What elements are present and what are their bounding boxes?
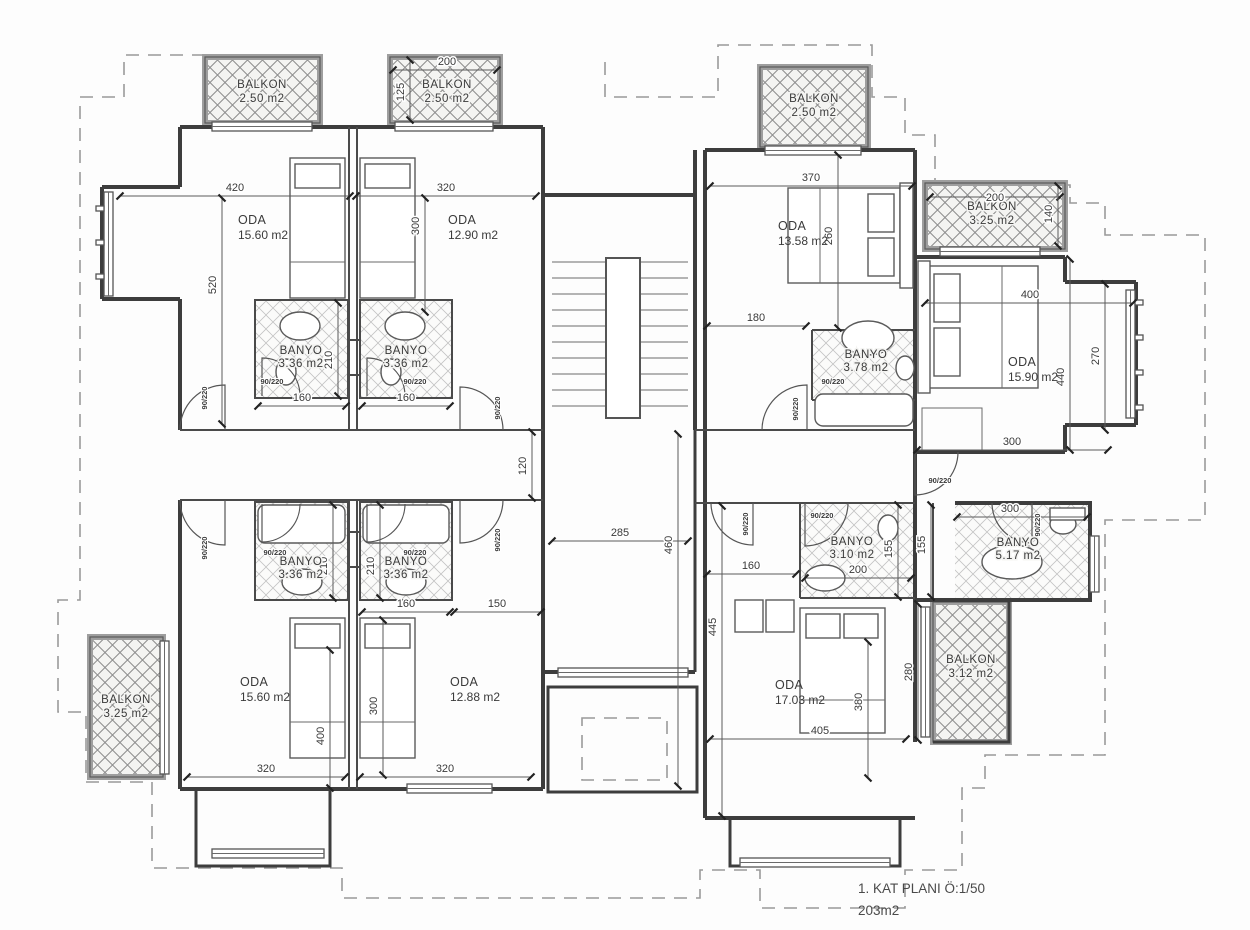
dim-300-br: 300 [1001,503,1019,515]
bed-oda-top-left [290,158,345,298]
window-hall-bottom [558,668,688,677]
cabinet [1050,508,1085,520]
dim-300-right: 300 [1003,436,1021,448]
dim-210-top: 210 [323,351,335,369]
dim-405: 405 [811,725,829,737]
dim-140: 140 [1043,205,1055,223]
dim-320-d: 320 [436,763,454,775]
title-block: 1. KAT PLANI Ö:1/50 203m2 [858,881,985,918]
room-area: 12.90 m2 [448,228,498,242]
window-porch-bottom-left [212,849,324,858]
room-name: ODA [238,213,267,227]
dim-120: 120 [517,457,529,475]
window-bay-left [96,192,113,296]
balcony-label: BALKON [422,79,472,91]
dim-445: 445 [707,618,719,636]
roof-outline [58,45,1205,908]
room-area: 13.58 m2 [778,234,828,248]
door-size-label: 90/220 [200,537,209,560]
dim-460: 460 [663,536,675,554]
window-porch-bottom-right [740,858,890,867]
room-name: ODA [448,213,477,227]
room-name: BANYO [997,537,1040,549]
balcony-top-1: BALKON 2.50 m2 [205,57,320,123]
dim-380: 380 [853,693,865,711]
roof-void-outline [582,718,667,780]
window-bay-right [1126,290,1143,418]
balcony-area: 2.50 m2 [239,93,284,105]
dim-300-tl: 300 [410,217,422,235]
room-name: ODA [450,675,479,689]
door-size-label: 90/220 [822,377,845,386]
balcony-label: BALKON [237,79,287,91]
dim-300-bl: 300 [368,697,380,715]
door-size-label: 90/220 [929,476,952,485]
room-name: BANYO [831,536,874,548]
sink [280,312,320,340]
dim-160-c: 160 [397,598,415,610]
balcony-label: BALKON [946,654,996,666]
window-balcony-left-edge [160,641,169,774]
dim-125: 125 [395,83,407,101]
dim-320-c: 320 [257,763,275,775]
bathtub [363,505,449,543]
door-size-label: 90/220 [404,377,427,386]
balcony-bottom-right: BALKON 3.12 m2 [933,602,1009,742]
plan-title: 1. KAT PLANI Ö:1/50 [858,881,985,896]
dim-200-balcony2: 200 [438,56,456,68]
dim-520: 520 [207,276,219,294]
door-arc [915,452,958,495]
room-area: 3.10 m2 [829,549,874,561]
dim-150: 150 [488,598,506,610]
bed-oda-bottom-mid [360,618,415,758]
dim-155-a: 155 [883,540,895,558]
room-area: 15.90 m2 [1008,370,1058,384]
bed-oda-top-mid [360,158,415,298]
dim-285: 285 [611,527,629,539]
balcony-label: BALKON [789,93,839,105]
room-area: 3.36 m2 [383,569,428,581]
door-size-label: 90/220 [1033,514,1042,537]
balcony-area: 2.50 m2 [424,93,469,105]
dim-420: 420 [226,182,244,194]
balcony-left-bottom: BALKON 3.25 m2 [90,637,163,777]
dim-155-b: 155 [916,536,928,554]
door-size-label: 90/220 [493,397,502,420]
dim-400-bl: 400 [315,727,327,745]
door-size-label: 90/220 [741,513,750,536]
toilet [896,356,914,380]
bathtub [258,505,345,543]
room-area: 3.36 m2 [383,358,428,370]
toilet [878,515,898,541]
dim-370: 370 [802,172,820,184]
room-area: 15.60 m2 [240,690,290,704]
door-size-label: 90/220 [261,377,284,386]
door-size-label: 90/220 [811,511,834,520]
room-area: 12.88 m2 [450,690,500,704]
window-balcony-door-1 [212,122,312,131]
balcony-area: 3.12 m2 [948,668,993,680]
dim-270: 270 [1090,347,1102,365]
balcony-label: BALKON [101,694,151,706]
room-name: ODA [1008,355,1037,369]
room-area: 15.60 m2 [238,228,288,242]
window-balcony-door-3 [765,146,861,155]
dim-400-right: 400 [1021,289,1039,301]
door-size-label: 90/220 [200,387,209,410]
room-name: ODA [240,675,269,689]
room-name: BANYO [280,556,323,568]
room-name: BANYO [385,345,428,357]
balcony-top-3: BALKON 2.50 m2 [760,67,868,147]
balcony-area: 3.25 m2 [103,708,148,720]
sink [385,312,425,340]
room-area: 17.03 m2 [775,693,825,707]
room-area: 3.36 m2 [278,569,323,581]
room-name: ODA [775,678,804,692]
bed-oda-bottom-right [735,600,885,733]
dim-200-balcony4: 200 [986,192,1004,204]
room-name: ODA [778,219,807,233]
dim-320-top: 320 [437,182,455,194]
floor-plan-drawing: BALKON 2.50 m2 BALKON 2.50 m2 BALKON 2.5… [0,0,1250,930]
bathtub [815,394,913,426]
room-name: BANYO [280,345,323,357]
room-area: 3.36 m2 [278,358,323,370]
room-name: BANYO [385,556,428,568]
window-balcony-door-2 [395,122,493,131]
room-area: 5.17 m2 [995,550,1040,562]
stair-newel [606,258,640,418]
room-name: BANYO [845,349,888,361]
floor-plan-page: BALKON 2.50 m2 BALKON 2.50 m2 BALKON 2.5… [0,0,1250,930]
plan-area-total: 203m2 [858,903,899,918]
window-banyo-517 [1090,536,1099,592]
door-size-label: 90/220 [493,529,502,552]
dim-280: 280 [903,663,915,681]
door-arc [762,385,807,430]
dim-200-br: 200 [849,564,867,576]
dim-160-a: 160 [293,392,311,404]
dim-210-b2: 210 [365,557,377,575]
dim-160-b: 160 [397,392,415,404]
room-area: 3.78 m2 [843,362,888,374]
staircase [552,258,688,418]
door-size-label: 90/220 [791,398,800,421]
dim-180: 180 [747,312,765,324]
window-balcony-door-4 [940,247,1040,256]
balcony-area: 3.25 m2 [969,215,1014,227]
window-room-bottom-mid [407,784,492,793]
balcony-area: 2.50 m2 [791,107,836,119]
dim-160-d: 160 [742,560,760,572]
window-balcony-br-edge [921,607,930,737]
